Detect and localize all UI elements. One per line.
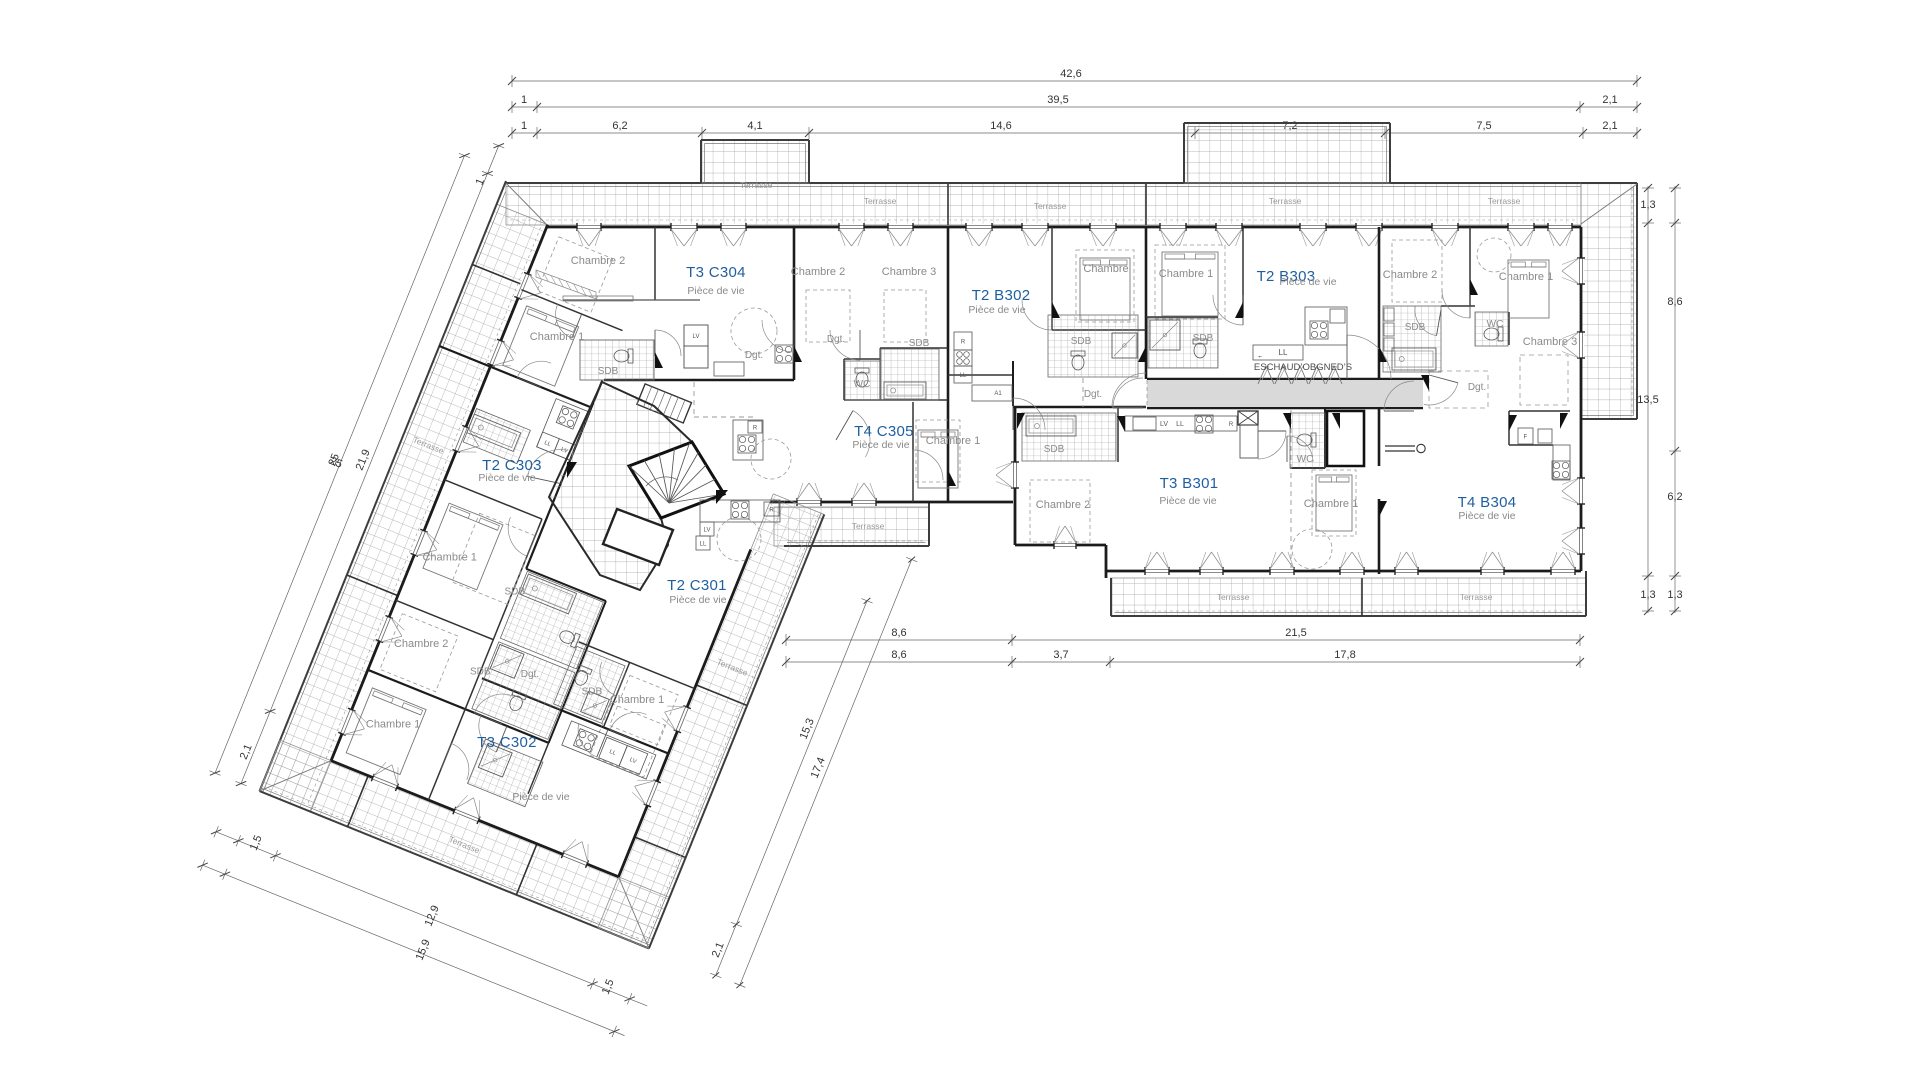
svg-text:Terrasse: Terrasse: [1034, 201, 1067, 211]
svg-text:Chambre 2: Chambre 2: [571, 255, 625, 267]
svg-text:LL: LL: [960, 373, 967, 379]
svg-text:7,5: 7,5: [1476, 120, 1491, 132]
svg-text:SDB: SDB: [470, 666, 491, 677]
svg-text:T4 B304: T4 B304: [1458, 494, 1517, 511]
svg-text:LL: LL: [1176, 421, 1184, 428]
svg-text:Chambre: Chambre: [1083, 263, 1128, 275]
svg-text:Chambre 2: Chambre 2: [791, 266, 845, 278]
svg-text:Dgt.: Dgt.: [827, 334, 845, 345]
svg-text:Chambre 1: Chambre 1: [926, 435, 980, 447]
svg-text:A1: A1: [994, 391, 1002, 397]
svg-text:LV: LV: [693, 334, 700, 340]
svg-text:Chambre 1: Chambre 1: [1159, 268, 1213, 280]
svg-text:1,3: 1,3: [1640, 199, 1655, 211]
svg-text:4,1: 4,1: [747, 120, 762, 132]
svg-text:21,5: 21,5: [1285, 627, 1306, 639]
svg-text:SDB: SDB: [1405, 322, 1426, 333]
svg-text:Terrasse: Terrasse: [1217, 592, 1250, 602]
svg-text:8,6: 8,6: [891, 627, 906, 639]
svg-text:14,6: 14,6: [990, 120, 1011, 132]
svg-text:Chambre 1: Chambre 1: [422, 552, 476, 564]
svg-text:8,6: 8,6: [891, 649, 906, 661]
svg-text:SDB: SDB: [598, 366, 619, 377]
svg-text:Pièce de vie: Pièce de vie: [1279, 276, 1336, 288]
svg-text:1,3: 1,3: [1640, 589, 1655, 601]
svg-text:Terrasse: Terrasse: [864, 196, 897, 206]
svg-text:39,5: 39,5: [1047, 94, 1068, 106]
svg-text:1: 1: [521, 120, 527, 132]
svg-text:8,6: 8,6: [1667, 296, 1682, 308]
svg-text:Pièce de vie: Pièce de vie: [1159, 495, 1216, 507]
svg-text:Chambre 2: Chambre 2: [1383, 269, 1437, 281]
svg-text:LL: LL: [700, 542, 707, 548]
svg-text:Pièce de vie: Pièce de vie: [512, 791, 569, 803]
svg-text:SDB: SDB: [505, 586, 526, 597]
svg-text:T4 C305: T4 C305: [854, 423, 914, 440]
svg-text:T3 C302: T3 C302: [477, 734, 537, 751]
svg-text:6,2: 6,2: [1667, 491, 1682, 503]
svg-text:LV: LV: [704, 528, 711, 534]
svg-text:R: R: [961, 340, 966, 346]
svg-text:Chambre 1: Chambre 1: [530, 331, 584, 343]
svg-text:SDB: SDB: [909, 338, 930, 349]
svg-text:T2 C301: T2 C301: [667, 577, 727, 594]
svg-text:SDB: SDB: [1044, 444, 1065, 455]
svg-text:Chambre 1: Chambre 1: [1499, 271, 1553, 283]
svg-text:Dgt.: Dgt.: [1084, 389, 1102, 400]
svg-text:Terrasse: Terrasse: [740, 180, 773, 190]
svg-text:Terrasse: Terrasse: [1460, 592, 1493, 602]
svg-text:Chambre 1: Chambre 1: [1304, 498, 1358, 510]
svg-text:Pièce de vie: Pièce de vie: [687, 285, 744, 297]
svg-text:Chambre 3: Chambre 3: [1523, 336, 1577, 348]
svg-text:2,1: 2,1: [1602, 94, 1617, 106]
svg-text:Pièce de vie: Pièce de vie: [1458, 510, 1515, 522]
svg-text:R: R: [753, 426, 758, 432]
svg-text:Dgt.: Dgt.: [1468, 382, 1486, 393]
svg-text:LV: LV: [1160, 421, 1168, 428]
svg-text:1: 1: [521, 94, 527, 106]
svg-text:Dgt.: Dgt.: [521, 669, 539, 680]
svg-text:WC: WC: [1487, 319, 1504, 330]
svg-text:SDB: SDB: [1193, 333, 1214, 344]
svg-text:Pièce de vie: Pièce de vie: [852, 439, 909, 451]
svg-text:Terrasse: Terrasse: [1488, 196, 1521, 206]
svg-text:R: R: [769, 508, 774, 514]
svg-text:17,8: 17,8: [1334, 649, 1355, 661]
svg-text:Chambre 1: Chambre 1: [610, 694, 664, 706]
svg-text:F: F: [1524, 435, 1528, 441]
svg-text:Chambre 3: Chambre 3: [882, 266, 936, 278]
svg-text:Dgt.: Dgt.: [745, 350, 763, 361]
svg-text:LL: LL: [1279, 348, 1288, 357]
svg-text:Terrasse: Terrasse: [1269, 196, 1302, 206]
svg-text:WC: WC: [854, 379, 871, 390]
svg-text:Pièce de vie: Pièce de vie: [478, 472, 535, 484]
svg-text:Chambre 2: Chambre 2: [394, 638, 448, 650]
svg-text:T3 C304: T3 C304: [686, 264, 746, 281]
svg-text:WC: WC: [1297, 454, 1314, 465]
svg-text:Pièce de vie: Pièce de vie: [968, 304, 1025, 316]
svg-text:SDB: SDB: [1071, 336, 1092, 347]
svg-text:Pièce de vie: Pièce de vie: [669, 594, 726, 606]
svg-text:R: R: [1229, 422, 1234, 428]
svg-text:ESCHAUD’OBGNED’S: ESCHAUD’OBGNED’S: [1254, 362, 1352, 373]
svg-text:1,3: 1,3: [1667, 589, 1682, 601]
svg-text:T2 B302: T2 B302: [972, 287, 1031, 304]
svg-text:6,2: 6,2: [612, 120, 627, 132]
svg-text:T3 B301: T3 B301: [1160, 475, 1219, 492]
svg-text:Terrasse: Terrasse: [852, 521, 885, 531]
svg-text:Chambre 1: Chambre 1: [366, 719, 420, 731]
svg-text:3,7: 3,7: [1053, 649, 1068, 661]
svg-text:42,6: 42,6: [1060, 68, 1081, 80]
svg-text:13,5: 13,5: [1637, 394, 1658, 406]
svg-text:SDB: SDB: [582, 687, 603, 698]
svg-text:2,1: 2,1: [1602, 120, 1617, 132]
svg-text:Chambre 2: Chambre 2: [1036, 499, 1090, 511]
